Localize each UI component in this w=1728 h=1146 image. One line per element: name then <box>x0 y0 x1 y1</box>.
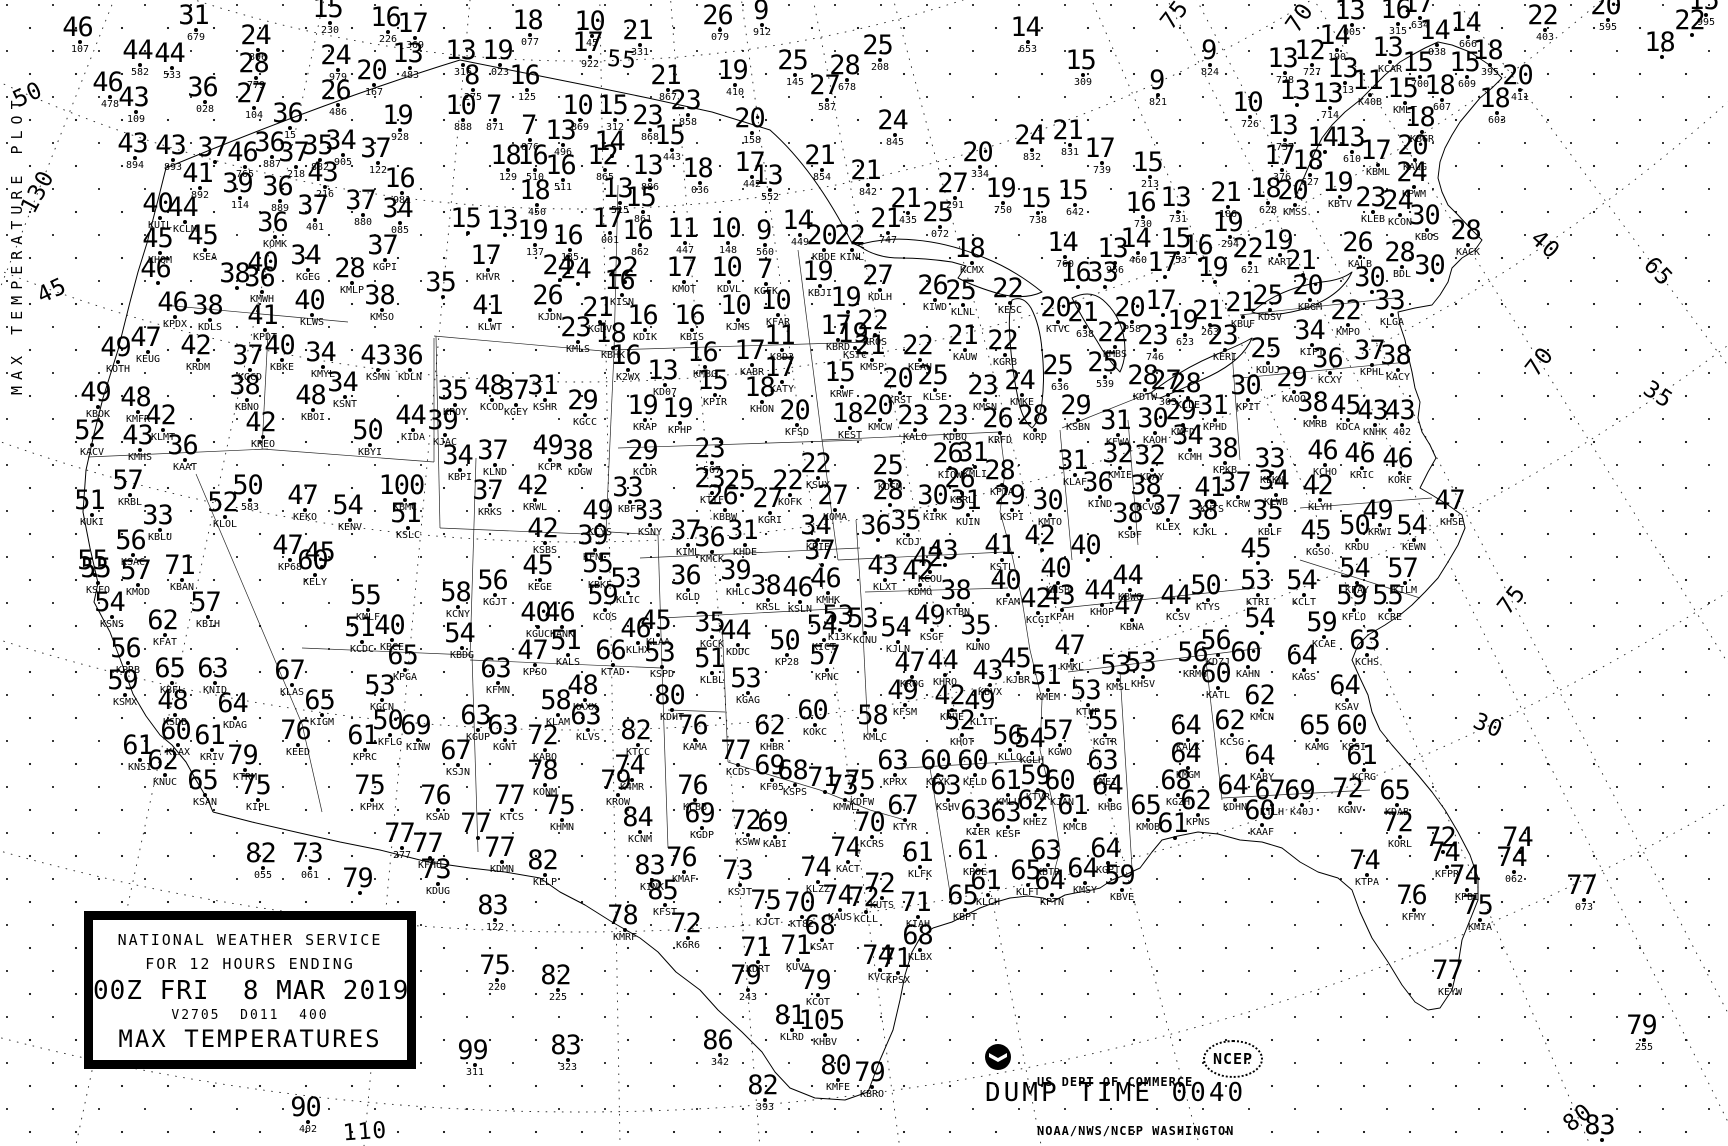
station-temp: 53 <box>730 665 761 692</box>
station-temp: 79 <box>600 767 631 794</box>
station-id: 595 <box>1599 23 1617 33</box>
station-dot-icon <box>1441 850 1445 854</box>
station-temp: 40 <box>1070 532 1101 559</box>
station-id: 478 <box>101 100 119 110</box>
station-temp: 46 <box>227 139 258 166</box>
station-temp: 41 <box>182 160 213 187</box>
station-id: 831 <box>1061 148 1079 158</box>
station-temp: 74 <box>1349 847 1380 874</box>
station-temp: 19 <box>382 102 413 129</box>
station-temp: 10 <box>445 92 476 119</box>
station-temp: 38 <box>229 372 260 399</box>
station-temp: 38 <box>364 282 395 309</box>
station-temp: 45 <box>1300 517 1331 544</box>
station-temp: 17 <box>666 254 697 281</box>
station-id: KRKS <box>478 508 502 518</box>
station-id: 552 <box>761 193 779 203</box>
station-dot-icon <box>1690 33 1694 37</box>
station-temp: 15 <box>654 122 685 149</box>
station-id: 255 <box>1635 1043 1653 1053</box>
station-temp: 78 <box>607 902 638 929</box>
station-temp: 21 <box>1052 117 1083 144</box>
station-temp: 21 <box>1067 299 1098 326</box>
station-temp: 29 <box>1060 392 1091 419</box>
station-id: KAMG <box>1305 743 1329 753</box>
station-temp: 16 <box>517 142 548 169</box>
station-temp: 43 <box>122 422 153 449</box>
station-temp: 19 <box>830 284 861 311</box>
station-temp: 77 <box>494 782 525 809</box>
station-temp: 35 <box>437 377 468 404</box>
station-temp: 44 <box>720 617 751 644</box>
station-temp: 30 <box>1137 405 1168 432</box>
station-id: 342 <box>711 1058 729 1068</box>
station-id: KBTV <box>1328 200 1352 210</box>
station-dot-icon <box>1430 278 1434 282</box>
station-id: 623 <box>1176 338 1194 348</box>
station-id: 277 <box>393 851 411 861</box>
station-temp: 65 <box>304 687 335 714</box>
station-temp: 23 <box>1355 184 1386 211</box>
station-id: KJMS <box>726 323 750 333</box>
station-temp: 16 <box>610 342 641 369</box>
station-temp: 45 <box>522 552 553 579</box>
station-temp: 37 <box>472 477 503 504</box>
station-temp: 54 <box>806 612 837 639</box>
station-temp: 24 <box>1004 367 1035 394</box>
station-id: KBML <box>1366 168 1390 178</box>
station-id: KHEZ <box>1023 818 1047 828</box>
station-id: KSMX <box>113 698 137 708</box>
station-id: KPNC <box>815 673 839 683</box>
station-id: K6R6 <box>676 941 700 951</box>
station-temp: 47 <box>1434 487 1465 514</box>
station-temp: 24 <box>560 256 591 283</box>
station-temp: 38 <box>750 572 781 599</box>
station-id: KJCT <box>756 918 780 928</box>
station-id: KPNS <box>1186 818 1210 828</box>
station-temp: 30 <box>1414 252 1445 279</box>
station-id: KRDU <box>1345 543 1369 553</box>
station-temp: 23 <box>1137 322 1168 349</box>
station-temp: 33 <box>1374 287 1405 314</box>
station-id: KFLG <box>378 738 402 748</box>
station-temp: 77 <box>412 830 443 857</box>
station-id: KENV <box>338 523 362 533</box>
station-temp: 75 <box>240 772 271 799</box>
station-id: 230 <box>321 26 339 36</box>
station-temp: 29 <box>567 387 598 414</box>
station-id: KGAG <box>736 696 760 706</box>
station-temp: 49 <box>887 677 918 704</box>
station-temp: 54 <box>1244 605 1275 632</box>
station-temp: 52 <box>944 707 975 734</box>
station-temp: 26 <box>982 405 1013 432</box>
station-id: 747 <box>879 236 897 246</box>
station-id: KGCC <box>573 418 597 428</box>
station-temp: 42 <box>180 332 211 359</box>
station-id: 824 <box>1201 68 1219 78</box>
station-temp: 37 <box>232 342 263 369</box>
station-temp: 39 <box>720 557 751 584</box>
station-id: KPIR <box>703 398 727 408</box>
station-temp: 52 <box>207 489 238 516</box>
station-id: KHBG <box>1098 803 1122 813</box>
station-temp: 37 <box>804 537 835 564</box>
station-temp: 38 <box>1297 389 1328 416</box>
station-temp: 20 <box>1040 294 1071 321</box>
station-id: KSDF <box>1118 531 1142 541</box>
station-temp: 40 <box>374 612 405 639</box>
station-temp: 13 <box>1279 77 1310 104</box>
station-id: KGNV <box>1338 806 1362 816</box>
station-temp: 23 <box>560 314 591 341</box>
station-id: KBIH <box>196 620 220 630</box>
station-temp: 25 <box>862 32 893 59</box>
station-temp: 41 <box>247 302 278 329</box>
station-id: KGEY <box>504 408 528 418</box>
station-id: KINW <box>406 743 430 753</box>
station-id: KAUW <box>953 353 977 363</box>
side-label: MAX TEMPERATURE PLOT <box>8 94 26 395</box>
station-id: KHMN <box>550 823 574 833</box>
station-temp: 60 <box>1200 660 1231 687</box>
station-temp: 33 <box>1087 259 1118 286</box>
station-temp: 47 <box>1114 592 1145 619</box>
station-dot-icon <box>610 154 614 158</box>
station-dot-icon <box>1260 631 1264 635</box>
station-temp: 43 <box>118 84 149 111</box>
legend-agency: NATIONAL WEATHER SERVICE <box>93 928 407 952</box>
station-id: KHSV <box>1131 680 1155 690</box>
station-temp: 37 <box>498 377 529 404</box>
station-temp: 63 <box>570 702 601 729</box>
station-id: K2WX <box>616 373 640 383</box>
station-id: KDAG <box>223 721 247 731</box>
station-temp: 19 <box>1322 169 1353 196</box>
graticule-label: 55 <box>606 46 638 74</box>
station-temp: 45 <box>1240 535 1271 562</box>
station-dot-icon <box>358 891 362 895</box>
station-temp: 75 <box>354 772 385 799</box>
station-temp: 34 <box>305 339 336 366</box>
station-temp: 38 <box>1187 497 1218 524</box>
station-temp: 72 <box>848 884 879 911</box>
station-temp: 34 <box>1258 467 1289 494</box>
station-dot-icon <box>1076 285 1080 289</box>
station-temp: 38 <box>1112 500 1143 527</box>
station-temp: 13 <box>752 162 783 189</box>
station-id: KUNO <box>966 643 990 653</box>
station-temp: 28 <box>334 255 365 282</box>
station-id: KRIV <box>200 753 224 763</box>
station-temp: 20 <box>734 105 765 132</box>
station-temp: 77 <box>1566 872 1597 899</box>
station-id: 403 <box>1536 33 1554 43</box>
station-id: KGRI <box>758 516 782 526</box>
station-temp: 79 <box>800 967 831 994</box>
station-temp: 24 <box>1014 122 1045 149</box>
station-temp: 51 <box>550 627 581 654</box>
station-id: KEST <box>838 431 862 441</box>
station-dot-icon <box>576 282 580 286</box>
station-temp: 59 <box>1306 609 1337 636</box>
station-temp: 84 <box>622 804 653 831</box>
station-temp: 36 <box>272 100 303 127</box>
station-temp: 47 <box>130 324 161 351</box>
station-temp: 63 <box>877 747 908 774</box>
station-id: KRAP <box>633 423 657 433</box>
station-temp: 31 <box>1197 392 1228 419</box>
station-temp: 30 <box>1032 487 1063 514</box>
station-id: 062 <box>1505 875 1523 885</box>
station-temp: 29 <box>627 437 658 464</box>
station-id: KHSE <box>1440 518 1464 528</box>
station-id: KACV <box>80 448 104 458</box>
station-id: KGJT <box>483 598 507 608</box>
station-temp: 27 <box>809 72 840 99</box>
station-id: K40J <box>1290 808 1314 818</box>
station-temp: 19 <box>802 258 833 285</box>
station-temp: 19 <box>662 395 693 422</box>
station-temp: 63 <box>960 797 991 824</box>
station-id: KCOS <box>593 613 617 623</box>
station-dot-icon <box>1600 1138 1604 1142</box>
station-temp: 40 <box>1040 555 1071 582</box>
station-id: 638 <box>1076 330 1094 340</box>
station-id: KSGF <box>920 633 944 643</box>
station-id: KREO <box>251 440 275 450</box>
station-temp: 55 <box>350 582 381 609</box>
station-temp: 59 <box>107 667 138 694</box>
station-id: KEWN <box>1402 543 1426 553</box>
station-temp: 16 <box>622 217 653 244</box>
station-id: KFLO <box>1342 613 1366 623</box>
station-id: KPDX <box>163 320 187 330</box>
station-temp: 73 <box>420 856 451 883</box>
station-temp: 80 <box>654 682 685 709</box>
station-id: KMIA <box>1468 923 1492 933</box>
station-id: 486 <box>329 108 347 118</box>
station-temp: 72 <box>527 722 558 749</box>
station-id: KNUC <box>153 778 177 788</box>
station-temp: 8 <box>464 62 479 89</box>
station-id: 243 <box>739 993 757 1003</box>
station-id: KLGA <box>1380 318 1404 328</box>
station-temp: 50 <box>1190 572 1221 599</box>
station-temp: 33 <box>632 497 663 524</box>
station-temp: 46 <box>544 599 575 626</box>
station-id: KDSV <box>1258 313 1282 323</box>
station-temp: 53 <box>1125 649 1156 676</box>
station-temp: 22 <box>1097 319 1128 346</box>
station-id: 129 <box>499 173 517 183</box>
station-temp: 14 <box>1419 17 1450 44</box>
station-temp: 48 <box>295 382 326 409</box>
station-temp: 20 <box>1590 0 1621 19</box>
station-temp: 37 <box>477 437 508 464</box>
station-temp: 62 <box>147 607 178 634</box>
station-dot-icon <box>1295 103 1299 107</box>
station-temp: 56 <box>1200 627 1231 654</box>
station-id: KAGS <box>1292 673 1316 683</box>
station-temp: 79 <box>1626 1012 1657 1039</box>
station-id: KPRC <box>353 753 377 763</box>
station-id: KGDP <box>690 831 714 841</box>
station-temp: 72 <box>1382 809 1413 836</box>
station-id: KGPI <box>373 263 397 273</box>
station-id: KLLQ <box>998 753 1022 763</box>
station-id: KBVE <box>1110 893 1134 903</box>
station-temp: 42 <box>1302 472 1333 499</box>
station-temp: 34 <box>1172 422 1203 449</box>
station-temp: 20 <box>779 397 810 424</box>
station-id: KRWI <box>1368 528 1392 538</box>
station-temp: 16 <box>687 339 718 366</box>
station-id: 750 <box>994 206 1012 216</box>
station-id: KACK <box>1456 248 1480 258</box>
station-id: KLWT <box>478 323 502 333</box>
station-temp: 23 <box>897 402 928 429</box>
station-id: KTCS <box>500 813 524 823</box>
station-id: KBRO <box>860 1090 884 1100</box>
station-id: KGWO <box>1048 748 1072 758</box>
station-temp: 30 <box>917 482 948 509</box>
graticule-label: 110 <box>342 1117 388 1146</box>
station-temp: 28 <box>238 50 269 77</box>
station-temp: 27 <box>817 482 848 509</box>
station-temp: 54 <box>1339 555 1370 582</box>
station-temp: 61 <box>957 837 988 864</box>
station-id: KSLC <box>396 531 420 541</box>
station-temp: 67 <box>887 792 918 819</box>
station-temp: 14 <box>1047 229 1078 256</box>
station-temp: 65 <box>1379 777 1410 804</box>
station-temp: 15 <box>1065 47 1096 74</box>
station-id: 583 <box>241 503 259 513</box>
station-id: KDLH <box>868 293 892 303</box>
station-temp: 53 <box>1240 567 1271 594</box>
station-id: KCHS <box>1355 658 1379 668</box>
station-temp: 28 <box>1170 370 1201 397</box>
station-id: KPTN <box>1040 898 1064 908</box>
station-temp: 38 <box>192 292 223 319</box>
station-id: 158 <box>743 136 761 146</box>
station-temp: 63 <box>487 712 518 739</box>
station-temp: 75 <box>1462 892 1493 919</box>
station-temp: 26 <box>1342 229 1373 256</box>
station-id: KIPL <box>246 803 270 813</box>
station-temp: 13 <box>1312 80 1343 107</box>
station-id: 028 <box>196 105 214 115</box>
station-id: KCGI <box>1026 616 1050 626</box>
station-temp: 18 <box>1479 85 1510 112</box>
station-dot-icon <box>1518 850 1522 854</box>
station-temp: 59 <box>1336 582 1367 609</box>
station-temp: 36 <box>392 342 423 369</box>
station-temp: 15 <box>312 0 343 22</box>
station-id: KLVS <box>576 733 600 743</box>
station-temp: 25 <box>945 277 976 304</box>
station-temp: 17 <box>572 29 603 56</box>
station-id: KBTR <box>1036 868 1060 878</box>
station-temp: 11 <box>667 215 698 242</box>
station-id: 582 <box>131 68 149 78</box>
station-id: 309 <box>1074 78 1092 88</box>
station-temp: 31 <box>527 372 558 399</box>
station-id: KSAD <box>426 813 450 823</box>
station-id: 587 <box>818 103 836 113</box>
station-temp: 14 <box>1120 225 1151 252</box>
station-id: 167 <box>365 88 383 98</box>
station-id: 393 <box>756 1103 774 1113</box>
station-temp: 25 <box>1042 352 1073 379</box>
station-id: 410 <box>726 88 744 98</box>
station-temp: 46 <box>62 14 93 41</box>
station-temp: 52 <box>74 417 105 444</box>
station-temp: 105 <box>798 1007 844 1034</box>
station-temp: 76 <box>677 772 708 799</box>
station-temp: 24 <box>1382 187 1413 214</box>
station-temp: 17 <box>1360 137 1391 164</box>
station-temp: 34 <box>290 242 321 269</box>
station-id: KBLU <box>148 533 172 543</box>
station-id: KLIC <box>616 596 640 606</box>
station-id: KBGM <box>1298 303 1322 313</box>
station-id: KELD <box>963 778 987 788</box>
station-temp: 64 <box>1217 772 1248 799</box>
station-temp: 16 <box>604 267 635 294</box>
station-id: KPSX <box>886 976 910 986</box>
station-temp: 23 <box>1207 322 1238 349</box>
station-temp: 75 <box>750 887 781 914</box>
station-temp: 72 <box>730 807 761 834</box>
station-temp: 45 <box>187 222 218 249</box>
station-temp: 19 <box>1197 254 1228 281</box>
station-temp: 41 <box>984 532 1015 559</box>
station-temp: 9 <box>1201 37 1216 64</box>
station-id: KSPI <box>1000 513 1024 523</box>
station-temp: 25 <box>1250 335 1281 362</box>
station-id: 125 <box>518 93 536 103</box>
station-temp: 76 <box>666 844 697 871</box>
station-temp: 20 <box>356 57 387 84</box>
station-temp: 38 <box>940 577 971 604</box>
station-id: KIWD <box>923 303 947 313</box>
station-temp: 17 <box>734 337 765 364</box>
station-temp: 19 <box>985 175 1016 202</box>
station-temp: 65 <box>187 767 218 794</box>
station-temp: 24 <box>877 107 908 134</box>
station-temp: 37 <box>297 192 328 219</box>
station-temp: 55 <box>1087 707 1118 734</box>
station-temp: 76 <box>420 782 451 809</box>
station-temp: 69 <box>684 800 715 827</box>
station-temp: 19 <box>517 217 548 244</box>
station-id: 679 <box>187 33 205 43</box>
station-id: KSJN <box>446 768 470 778</box>
dump-time-label: DUMP TIME 0040 <box>985 1078 1246 1108</box>
station-id: KSEA <box>193 253 217 263</box>
station-temp: 67 <box>440 737 471 764</box>
station-temp: 17 <box>1084 135 1115 162</box>
station-temp: 16 <box>627 302 658 329</box>
station-temp: 18 <box>490 142 521 169</box>
station-id: KBOS <box>1415 233 1439 243</box>
station-temp: 54 <box>444 620 475 647</box>
station-temp: 43 <box>117 130 148 157</box>
station-id: KLXT <box>873 583 897 593</box>
